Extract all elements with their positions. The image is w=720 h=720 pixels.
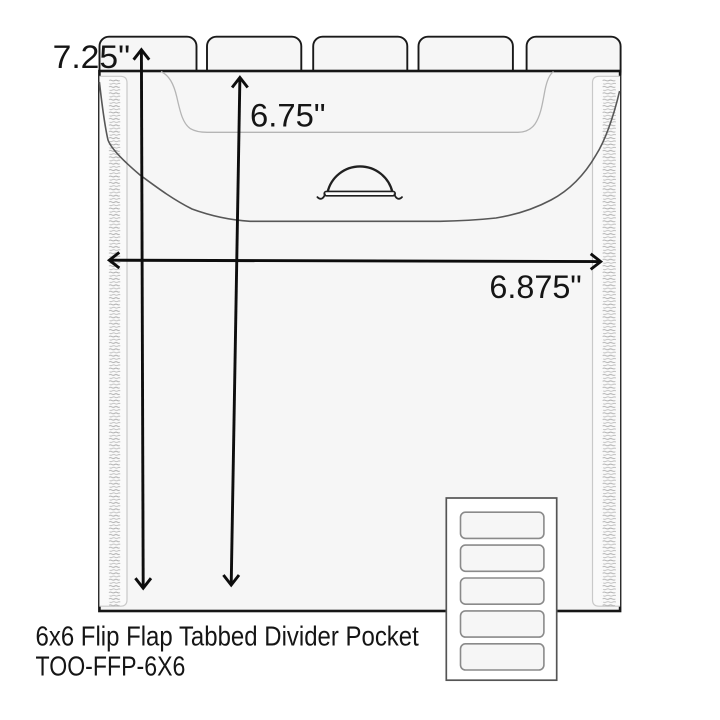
svg-text:6.75": 6.75" (250, 98, 326, 134)
svg-text:6.875": 6.875" (489, 269, 581, 305)
svg-text:TOO-FFP-6X6: TOO-FFP-6X6 (36, 651, 186, 682)
svg-text:6x6 Flip Flap Tabbed Divider P: 6x6 Flip Flap Tabbed Divider Pocket (36, 620, 420, 651)
svg-text:7.25": 7.25" (53, 39, 131, 75)
